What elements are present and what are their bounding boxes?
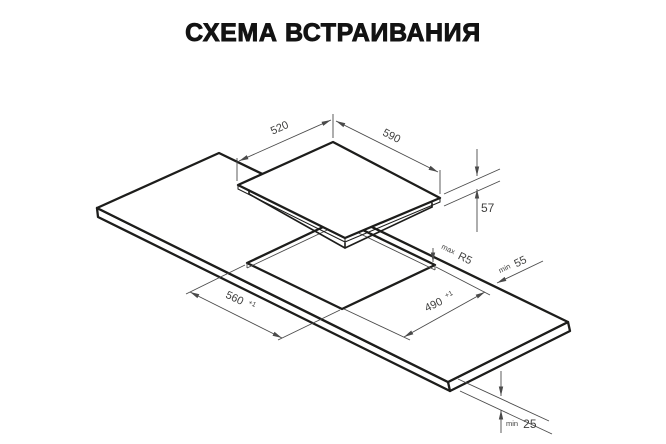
- dimension-label-590: 590: [380, 127, 402, 146]
- page-title: СХЕМА ВСТРАИВАНИЯ: [185, 19, 481, 47]
- annotation-label-min-55: min 55: [496, 252, 529, 277]
- dimension-label-57: 57: [481, 201, 495, 215]
- installation-diagram: СХЕМА ВСТРАИВАНИЯ: [0, 0, 666, 444]
- installation-scheme-page: СХЕМА ВСТРАИВАНИЯ: [0, 0, 666, 444]
- dimension-label-min-25: min 25: [506, 417, 537, 431]
- annotation-rear-clearance: min 55: [496, 252, 543, 283]
- dimension-cooktop-height: 57: [444, 149, 500, 232]
- dimension-label-520: 520: [269, 119, 291, 138]
